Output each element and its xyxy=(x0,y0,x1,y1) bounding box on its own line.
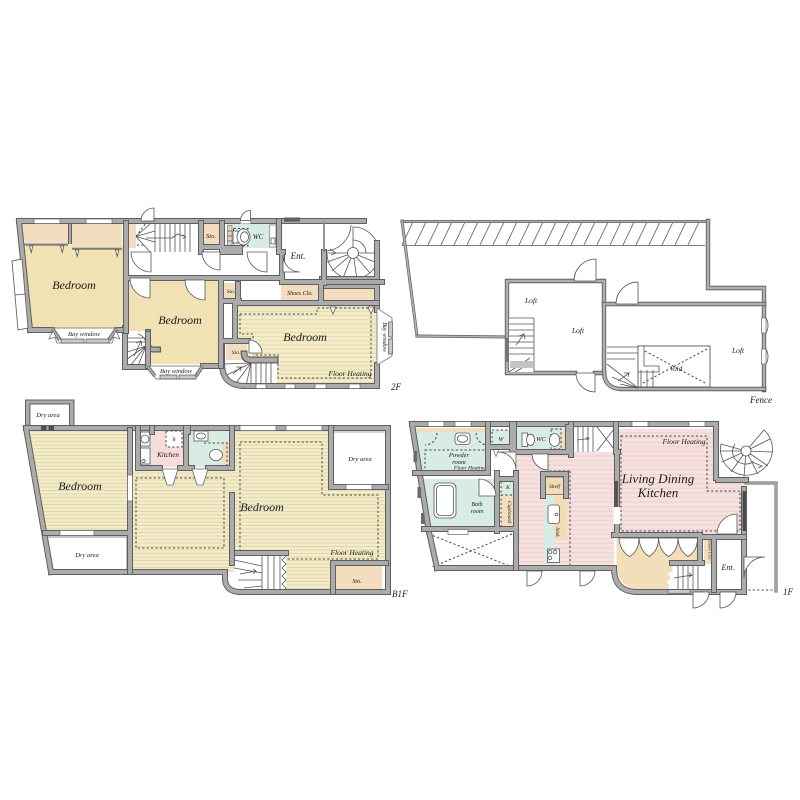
svg-text:Shelf: Shelf xyxy=(549,483,561,490)
svg-text:WC: WC xyxy=(536,436,546,443)
svg-text:Sto.: Sto. xyxy=(206,233,216,240)
svg-text:Floor Heating: Floor Heating xyxy=(329,548,373,557)
svg-text:Living Dining: Living Dining xyxy=(621,471,695,486)
svg-text:Powder: Powder xyxy=(448,452,470,459)
svg-text:Bay window: Bay window xyxy=(68,331,101,338)
svg-text:Sto.: Sto. xyxy=(227,289,235,295)
svg-text:Loft: Loft xyxy=(524,296,538,305)
svg-text:Bath: Bath xyxy=(471,502,482,508)
svg-text:Kitchen: Kitchen xyxy=(156,451,179,459)
svg-text:Ent.: Ent. xyxy=(720,563,734,572)
svg-text:Bay window: Bay window xyxy=(381,322,387,352)
svg-text:B1F: B1F xyxy=(392,589,408,599)
svg-text:Dry area: Dry area xyxy=(74,552,98,559)
svg-text:room: room xyxy=(471,509,484,515)
svg-text:Bedroom: Bedroom xyxy=(52,278,96,292)
svg-text:Sto.: Sto. xyxy=(352,579,361,585)
svg-text:Dry area: Dry area xyxy=(35,412,59,419)
svg-text:Sto.: Sto. xyxy=(232,350,240,356)
svg-text:WC: WC xyxy=(253,233,264,241)
svg-text:Bedroom: Bedroom xyxy=(58,479,102,493)
svg-text:Bedroom: Bedroom xyxy=(240,500,284,514)
svg-text:Cupboard: Cupboard xyxy=(506,501,512,523)
svg-text:K: K xyxy=(505,485,510,491)
svg-text:Fence: Fence xyxy=(749,395,772,405)
svg-text:Bedroom: Bedroom xyxy=(283,330,327,344)
svg-text:Floor Heating: Floor Heating xyxy=(327,369,371,378)
svg-text:Floor Heating: Floor Heating xyxy=(661,437,705,446)
svg-text:Void: Void xyxy=(670,365,683,373)
svg-text:1F: 1F xyxy=(783,587,794,597)
svg-text:Dry area: Dry area xyxy=(347,456,371,463)
svg-text:Bedroom: Bedroom xyxy=(158,313,202,327)
svg-text:Bay window: Bay window xyxy=(160,368,193,375)
svg-text:Shoes Clo.: Shoes Clo. xyxy=(287,291,313,297)
svg-text:Sink: Sink xyxy=(554,527,560,537)
svg-text:R: R xyxy=(171,438,175,443)
svg-text:Loft: Loft xyxy=(571,326,585,335)
svg-text:Kitchen: Kitchen xyxy=(637,485,678,500)
svg-text:2F: 2F xyxy=(391,382,402,392)
svg-text:Loft: Loft xyxy=(731,346,745,355)
svg-text:Ent.: Ent. xyxy=(290,251,306,261)
